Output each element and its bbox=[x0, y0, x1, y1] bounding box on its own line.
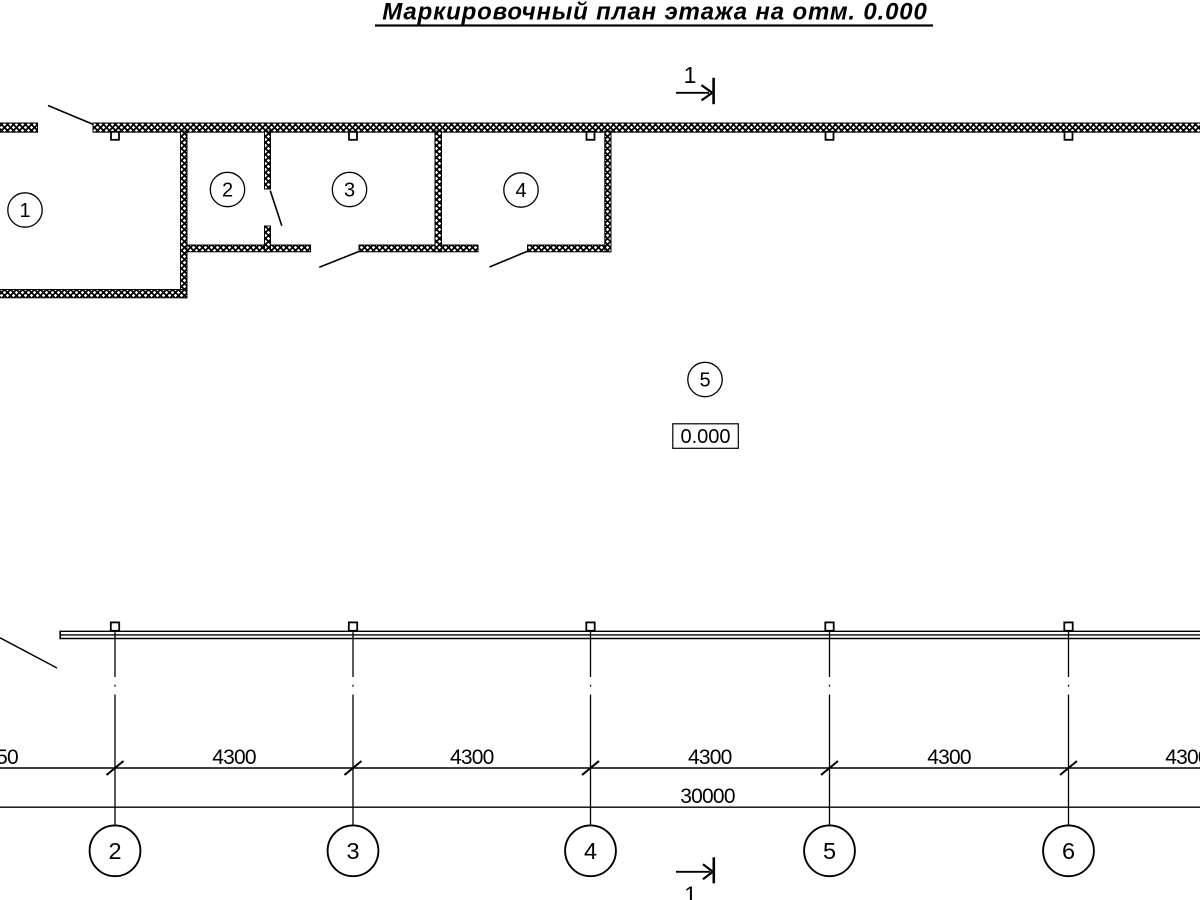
svg-text:1: 1 bbox=[19, 200, 30, 222]
svg-text:0.000: 0.000 bbox=[680, 426, 730, 448]
svg-text:2: 2 bbox=[222, 180, 233, 202]
svg-text:2: 2 bbox=[108, 838, 121, 864]
svg-text:5: 5 bbox=[699, 370, 710, 392]
svg-text:30000: 30000 bbox=[680, 785, 735, 808]
svg-text:3: 3 bbox=[346, 838, 359, 864]
svg-text:1: 1 bbox=[684, 882, 697, 900]
svg-text:4: 4 bbox=[515, 180, 526, 202]
svg-text:5: 5 bbox=[823, 838, 836, 864]
svg-text:Маркировочный план этажа на от: Маркировочный план этажа на отм. 0.000 bbox=[382, 0, 927, 26]
svg-text:4300: 4300 bbox=[450, 746, 494, 769]
svg-text:3: 3 bbox=[344, 180, 355, 202]
svg-text:4300: 4300 bbox=[212, 746, 256, 769]
svg-text:4300: 4300 bbox=[1165, 746, 1200, 769]
svg-text:50: 50 bbox=[0, 746, 18, 769]
svg-text:4300: 4300 bbox=[927, 746, 971, 769]
svg-text:1: 1 bbox=[684, 62, 697, 88]
svg-text:4300: 4300 bbox=[688, 746, 732, 769]
svg-text:6: 6 bbox=[1062, 838, 1075, 864]
svg-text:4: 4 bbox=[584, 838, 597, 864]
